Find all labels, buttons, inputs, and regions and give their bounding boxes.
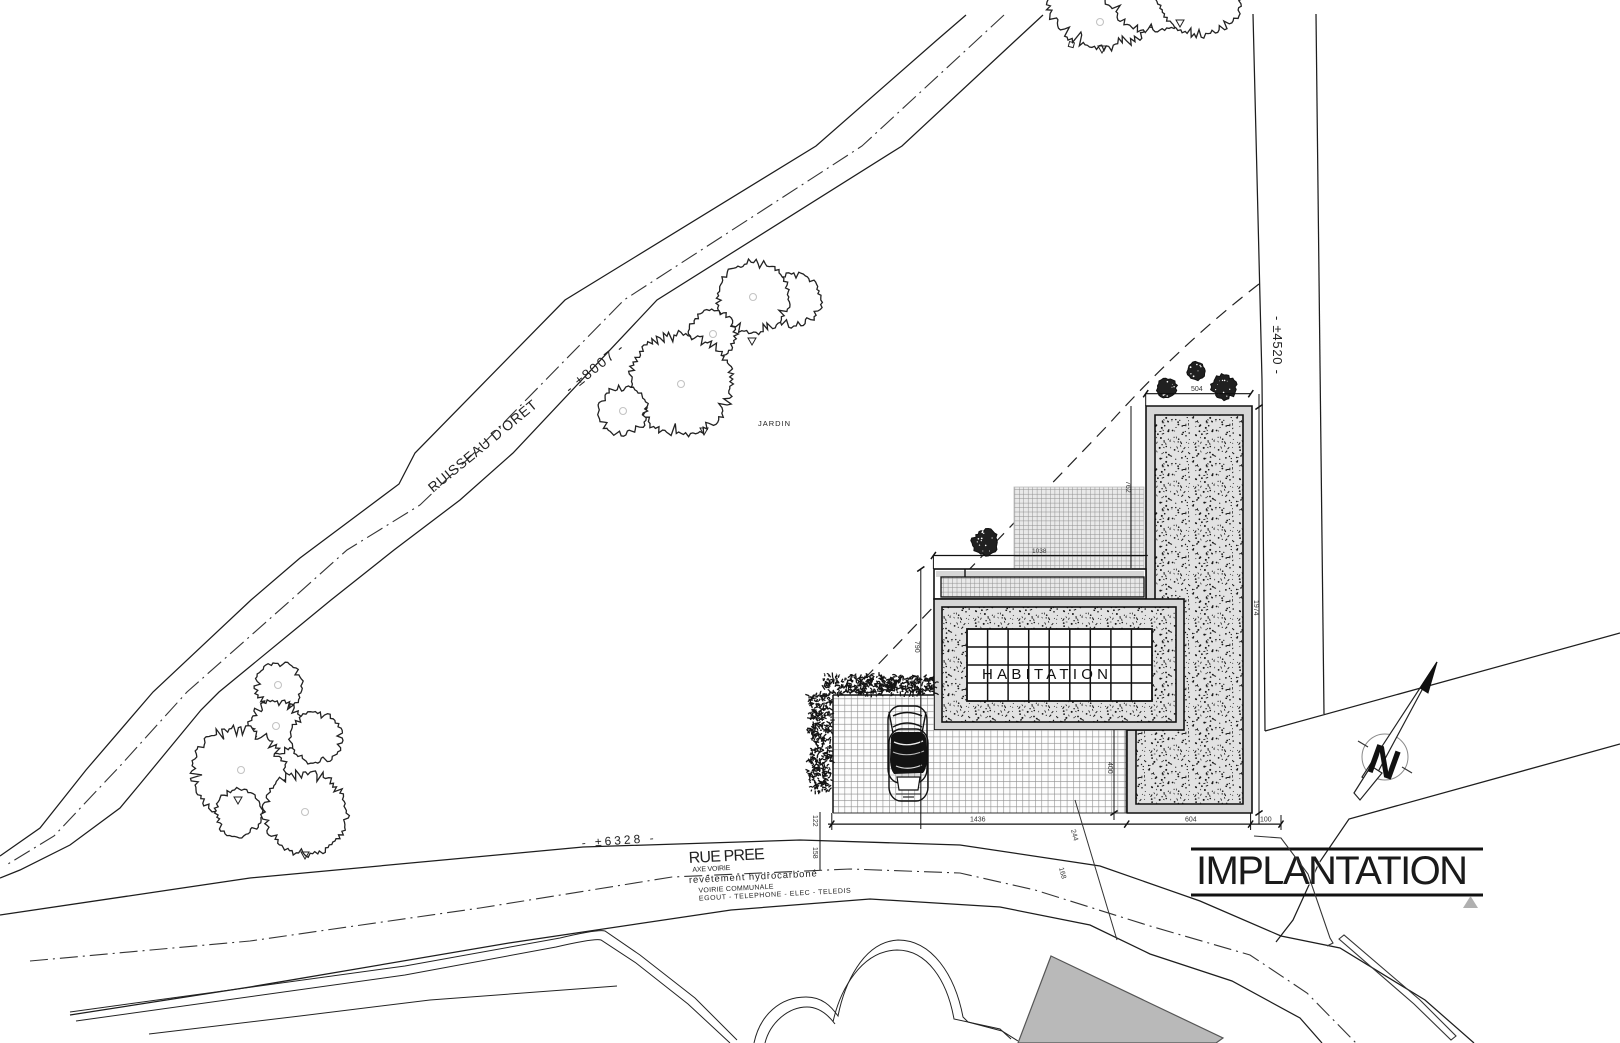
svg-text:122: 122 xyxy=(811,815,818,827)
svg-text:1436: 1436 xyxy=(970,817,986,824)
svg-text:JARDIN: JARDIN xyxy=(758,419,791,428)
svg-text:100: 100 xyxy=(1260,817,1272,824)
svg-text:- ±4520 -: - ±4520 - xyxy=(1270,316,1285,374)
svg-text:790: 790 xyxy=(913,641,920,653)
svg-text:1038: 1038 xyxy=(1032,548,1047,555)
svg-text:762: 762 xyxy=(1124,481,1131,493)
svg-text:158: 158 xyxy=(811,847,818,859)
svg-text:IMPLANTATION: IMPLANTATION xyxy=(1196,849,1468,893)
svg-text:1974: 1974 xyxy=(1252,600,1259,616)
svg-text:400: 400 xyxy=(1106,762,1113,774)
svg-text:604: 604 xyxy=(1185,817,1197,824)
svg-text:504: 504 xyxy=(1191,386,1203,393)
